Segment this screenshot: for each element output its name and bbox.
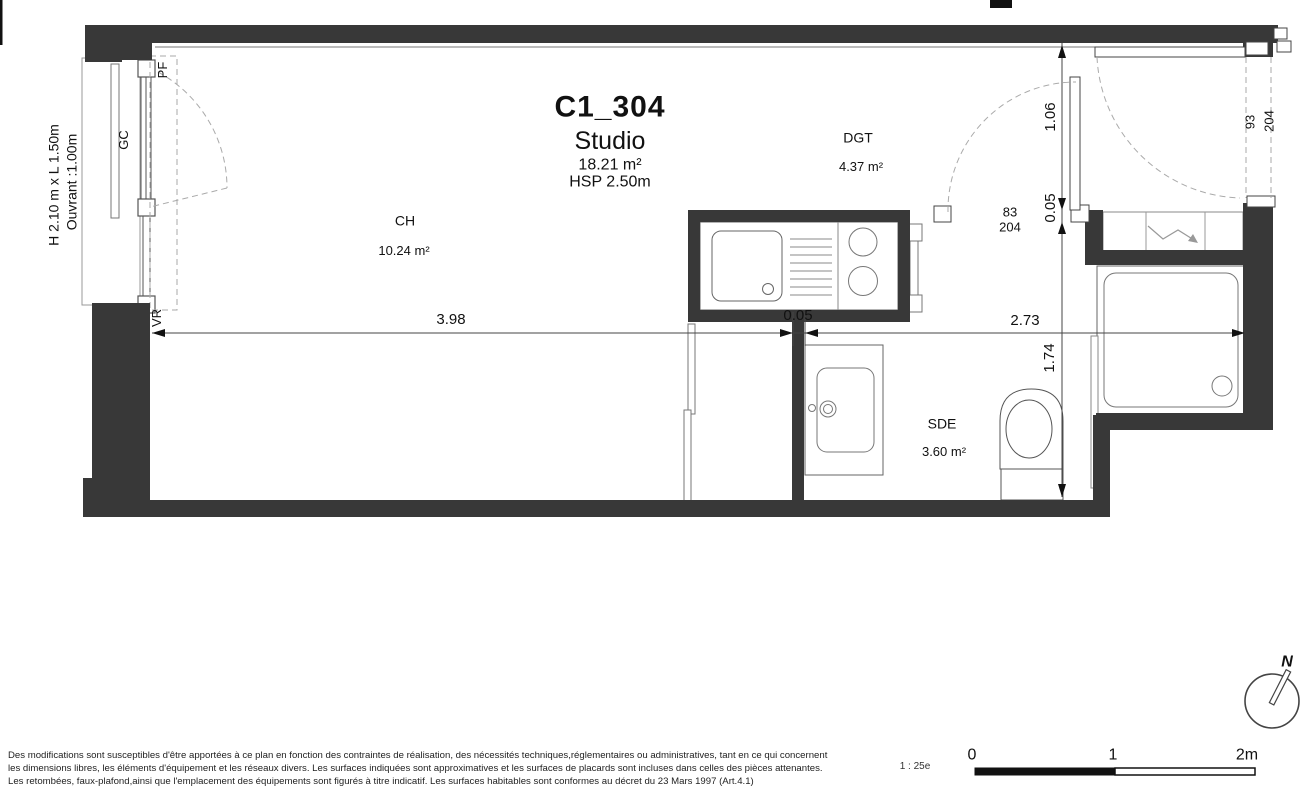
wall-kitchen-top: [688, 210, 910, 222]
wall-kitchen-right: [898, 210, 910, 322]
entrance-door-width: 93: [1243, 115, 1258, 129]
dim-right-width: 2.73: [1010, 313, 1039, 329]
entrance-door-height: 204: [1262, 110, 1277, 132]
disclaimer-line-3: Les retombées, faux-plafond,ainsi que l'…: [8, 775, 827, 788]
entrance-door-swing: [1097, 57, 1240, 198]
window-opening-label: Ouvrant :1.00m: [65, 134, 80, 231]
shower-drain: [1212, 376, 1232, 396]
north-label: N: [1281, 655, 1293, 672]
dim-partition: 0.05: [783, 308, 812, 324]
wall-left-lower: [92, 303, 150, 483]
top-edge-mark: [990, 0, 1012, 8]
wall-right-lower: [1243, 203, 1273, 430]
interior-door-height: 204: [999, 220, 1021, 235]
vanity-basin: [805, 345, 883, 475]
dim-wall-thickness: 0.05: [1043, 193, 1059, 222]
interior-door: [948, 77, 1080, 212]
entrance-door-leaf: [1095, 47, 1245, 57]
shower-tray: [1097, 266, 1245, 414]
wall-entry-b: [1103, 250, 1245, 265]
toilet: [1000, 389, 1063, 500]
scale-tick-1: 1: [1109, 748, 1118, 765]
scale-bar: [975, 768, 1255, 775]
window-size-label: H 2.10 m x L 1.50m: [47, 124, 62, 246]
disclaimer-line-1: Des modifications sont susceptibles d'êt…: [8, 749, 827, 762]
dim-ch-width: 3.98: [436, 312, 465, 328]
room-label-dgt: DGT: [843, 131, 873, 146]
shutter-label: VR: [150, 309, 164, 327]
wardrobe: [1103, 212, 1243, 252]
window-swing: [150, 56, 227, 310]
wall-top: [85, 25, 1278, 43]
north-compass: [1245, 670, 1299, 728]
hob-burner-2: [849, 267, 878, 296]
unit-code: C1_304: [554, 91, 665, 123]
room-label-sde: SDE: [928, 417, 957, 432]
kitchenette: [700, 222, 898, 310]
scale-tick-0: 0: [968, 748, 977, 765]
sliding-door: [684, 324, 695, 502]
wall-bottom: [83, 500, 1110, 517]
room-label-ch: CH: [395, 214, 415, 229]
window-frame: [138, 60, 155, 313]
dim-sde-depth: 1.74: [1042, 343, 1058, 372]
scale-tick-2: 2m: [1236, 748, 1258, 765]
unit-ceiling-height: HSP 2.50m: [569, 175, 651, 192]
interior-door-leaf: [1070, 77, 1080, 210]
unit-area: 18.21 m²: [578, 158, 641, 175]
guardrail-label: GC: [117, 130, 131, 150]
window-frame-label: PF: [156, 62, 170, 79]
interior-door-width: 83: [1003, 205, 1017, 220]
disclaimer-line-2: les dimensions libres, les éléments d'éq…: [8, 762, 827, 775]
wall-top-left-a: [85, 25, 122, 62]
wall-partition: [792, 322, 804, 502]
sink-drain: [763, 284, 774, 295]
dim-entry-depth: 1.06: [1043, 102, 1059, 131]
room-area-sde: 3.60 m²: [922, 445, 966, 459]
room-area-dgt: 4.37 m²: [839, 160, 883, 174]
scale-ratio: 1 : 25e: [900, 762, 931, 773]
wall-top-left-b: [118, 33, 152, 60]
wall-kitchen-left: [688, 210, 700, 322]
disclaimer: Des modifications sont susceptibles d'êt…: [8, 749, 827, 789]
room-area-ch: 10.24 m²: [378, 244, 429, 258]
hob-burner-1: [849, 228, 877, 256]
floor-plan-page: C1_304 Studio 18.21 m² HSP 2.50m CH 10.2…: [0, 0, 1316, 800]
left-edge-mark: [0, 0, 3, 45]
unit-type: Studio: [575, 128, 646, 154]
wall-shower-bottom: [1096, 413, 1245, 430]
window-bay: [82, 58, 140, 305]
